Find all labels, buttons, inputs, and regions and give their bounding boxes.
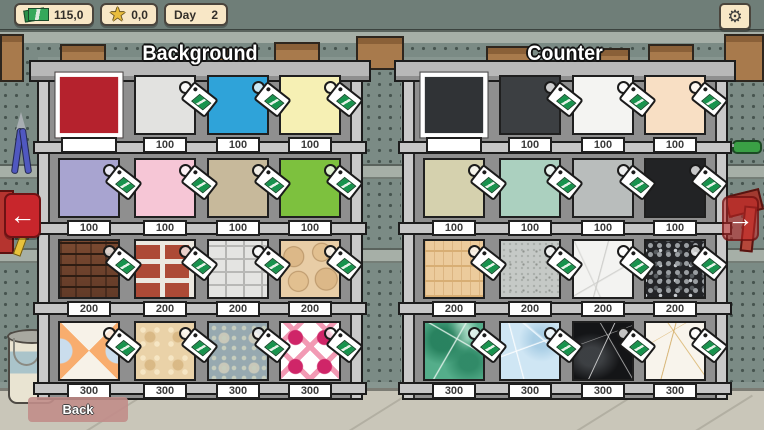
- item-cell-light-gray: 100: [132, 75, 198, 153]
- day-value: 2: [211, 8, 218, 22]
- item-cell-mandala: 300: [205, 321, 271, 399]
- price-label-wood: 200: [432, 301, 476, 317]
- star-value: 0,0: [131, 8, 148, 22]
- item-cell-green: 100: [277, 158, 343, 236]
- swatch-green[interactable]: [279, 158, 341, 218]
- swatch-green-marble[interactable]: [423, 321, 485, 381]
- swatch-gold-marble[interactable]: [644, 321, 706, 381]
- panel-background: Background 10010010010010010010020020020…: [35, 58, 365, 400]
- pliers-tool: [12, 112, 30, 178]
- swatch-white-marble[interactable]: [572, 239, 634, 299]
- item-cell-peach: 100: [642, 75, 708, 153]
- price-label-pale-yellow: 100: [288, 137, 332, 153]
- item-cell-light-gray: 100: [570, 158, 636, 236]
- item-cell-tan: 100: [205, 158, 271, 236]
- price-label-light-gray: 100: [143, 137, 187, 153]
- item-cell-pale-yellow: 100: [277, 75, 343, 153]
- item-cell-khaki: 100: [421, 158, 487, 236]
- swatch-hearts[interactable]: [279, 321, 341, 381]
- arrow-left-icon: ←: [10, 200, 36, 231]
- price-label-black-marble: 300: [581, 383, 625, 399]
- price-label-mandala: 300: [216, 383, 260, 399]
- swatch-damask[interactable]: [134, 321, 196, 381]
- price-label-gold-marble: 300: [653, 383, 697, 399]
- price-label-peach: 100: [653, 137, 697, 153]
- price-label-dark-gray: 100: [508, 137, 552, 153]
- price-label-pink: 100: [143, 220, 187, 236]
- swatch-black-marble[interactable]: [572, 321, 634, 381]
- swatch-light-gray[interactable]: [134, 75, 196, 135]
- item-cell-dark-brick: 200: [56, 239, 122, 317]
- price-label-black-terrazzo: 200: [653, 301, 697, 317]
- swatch-seafoam[interactable]: [499, 158, 561, 218]
- price-label-red-brick: 200: [143, 301, 187, 317]
- item-cell-cobblestone: 200: [277, 239, 343, 317]
- swatch-lavender[interactable]: [58, 158, 120, 218]
- price-label-black: 100: [653, 220, 697, 236]
- item-cell-hearts: 300: [277, 321, 343, 399]
- swatch-blue[interactable]: [207, 75, 269, 135]
- back-button[interactable]: Back: [28, 397, 128, 422]
- panel-title-background: Background: [45, 42, 355, 66]
- item-cell-dark-gray: 100: [497, 75, 563, 153]
- swatch-cobblestone[interactable]: [279, 239, 341, 299]
- price-label-khaki: 100: [432, 220, 476, 236]
- swatch-pink[interactable]: [134, 158, 196, 218]
- swatch-tan[interactable]: [207, 158, 269, 218]
- item-cell-wood: 200: [421, 239, 487, 317]
- swatch-concrete[interactable]: [499, 239, 561, 299]
- panel-counter: Counter 10010010010010010010020020020020…: [400, 58, 730, 400]
- prev-page-button[interactable]: ←: [4, 193, 41, 238]
- star-display: ★ 0,0: [100, 3, 158, 26]
- price-label-lavender: 100: [67, 220, 111, 236]
- item-cell-white-marble: 200: [570, 239, 636, 317]
- price-label-charcoal: [426, 137, 482, 153]
- price-label-tan: 100: [216, 220, 260, 236]
- swatch-blue-ice[interactable]: [499, 321, 561, 381]
- shop-screen: 115,0 ★ 0,0 Day 2 ⚙ Background 100100100…: [0, 0, 764, 430]
- swatch-pale-yellow[interactable]: [279, 75, 341, 135]
- swatch-peach[interactable]: [644, 75, 706, 135]
- item-cell-white-stone: 200: [205, 239, 271, 317]
- item-cell-red: [56, 75, 122, 153]
- banknotes-icon: [24, 7, 48, 22]
- day-label: Day: [174, 8, 196, 22]
- item-cell-white: 100: [570, 75, 636, 153]
- item-cell-seafoam: 100: [497, 158, 563, 236]
- item-cell-blue: 100: [205, 75, 271, 153]
- item-cell-blue-ice: 300: [497, 321, 563, 399]
- item-cell-green-marble: 300: [421, 321, 487, 399]
- star-icon: ★: [110, 6, 125, 23]
- price-label-red: [61, 137, 117, 153]
- price-label-white-stone: 200: [216, 301, 260, 317]
- swatch-dark-brick[interactable]: [58, 239, 120, 299]
- price-label-blue: 100: [216, 137, 260, 153]
- swatch-charcoal[interactable]: [421, 73, 488, 138]
- price-label-concrete: 200: [508, 301, 552, 317]
- panel-title-counter: Counter: [410, 42, 720, 66]
- next-page-button[interactable]: →: [722, 196, 759, 241]
- item-cell-pink: 100: [132, 158, 198, 236]
- price-label-white-marble: 200: [581, 301, 625, 317]
- price-label-light-gray: 100: [581, 220, 625, 236]
- price-label-blue-ice: 300: [508, 383, 552, 399]
- settings-button[interactable]: ⚙: [719, 3, 751, 30]
- price-label-white: 100: [581, 137, 625, 153]
- swatch-black[interactable]: [644, 158, 706, 218]
- item-cell-red-brick: 200: [132, 239, 198, 317]
- swatch-white[interactable]: [572, 75, 634, 135]
- price-label-cobblestone: 200: [288, 301, 332, 317]
- screwdriver-tool: [732, 140, 762, 154]
- swatch-diamond-tile[interactable]: [58, 321, 120, 381]
- price-label-green-marble: 300: [432, 383, 476, 399]
- swatch-mandala[interactable]: [207, 321, 269, 381]
- price-label-dark-brick: 200: [67, 301, 111, 317]
- item-cell-lavender: 100: [56, 158, 122, 236]
- item-cell-charcoal: [421, 75, 487, 153]
- money-display: 115,0: [14, 3, 94, 26]
- arrow-right-icon: →: [728, 203, 754, 234]
- item-cell-diamond-tile: 300: [56, 321, 122, 399]
- swatch-red[interactable]: [56, 73, 123, 138]
- cardboard-box: [0, 34, 24, 82]
- price-label-green: 100: [288, 220, 332, 236]
- swatch-white-stone[interactable]: [207, 239, 269, 299]
- money-value: 115,0: [54, 8, 83, 22]
- swatch-wood[interactable]: [423, 239, 485, 299]
- item-cell-black: 100: [642, 158, 708, 236]
- swatch-khaki[interactable]: [423, 158, 485, 218]
- price-label-damask: 300: [143, 383, 187, 399]
- swatch-light-gray[interactable]: [572, 158, 634, 218]
- swatch-red-brick[interactable]: [134, 239, 196, 299]
- item-cell-concrete: 200: [497, 239, 563, 317]
- day-display: Day 2: [164, 3, 228, 26]
- item-cell-damask: 300: [132, 321, 198, 399]
- pegboard-center: [363, 57, 401, 382]
- item-cell-black-terrazzo: 200: [642, 239, 708, 317]
- price-label-seafoam: 100: [508, 220, 552, 236]
- swatch-dark-gray[interactable]: [499, 75, 561, 135]
- price-label-hearts: 300: [288, 383, 332, 399]
- item-cell-gold-marble: 300: [642, 321, 708, 399]
- item-cell-black-marble: 300: [570, 321, 636, 399]
- swatch-black-terrazzo[interactable]: [644, 239, 706, 299]
- gear-icon: ⚙: [727, 7, 742, 27]
